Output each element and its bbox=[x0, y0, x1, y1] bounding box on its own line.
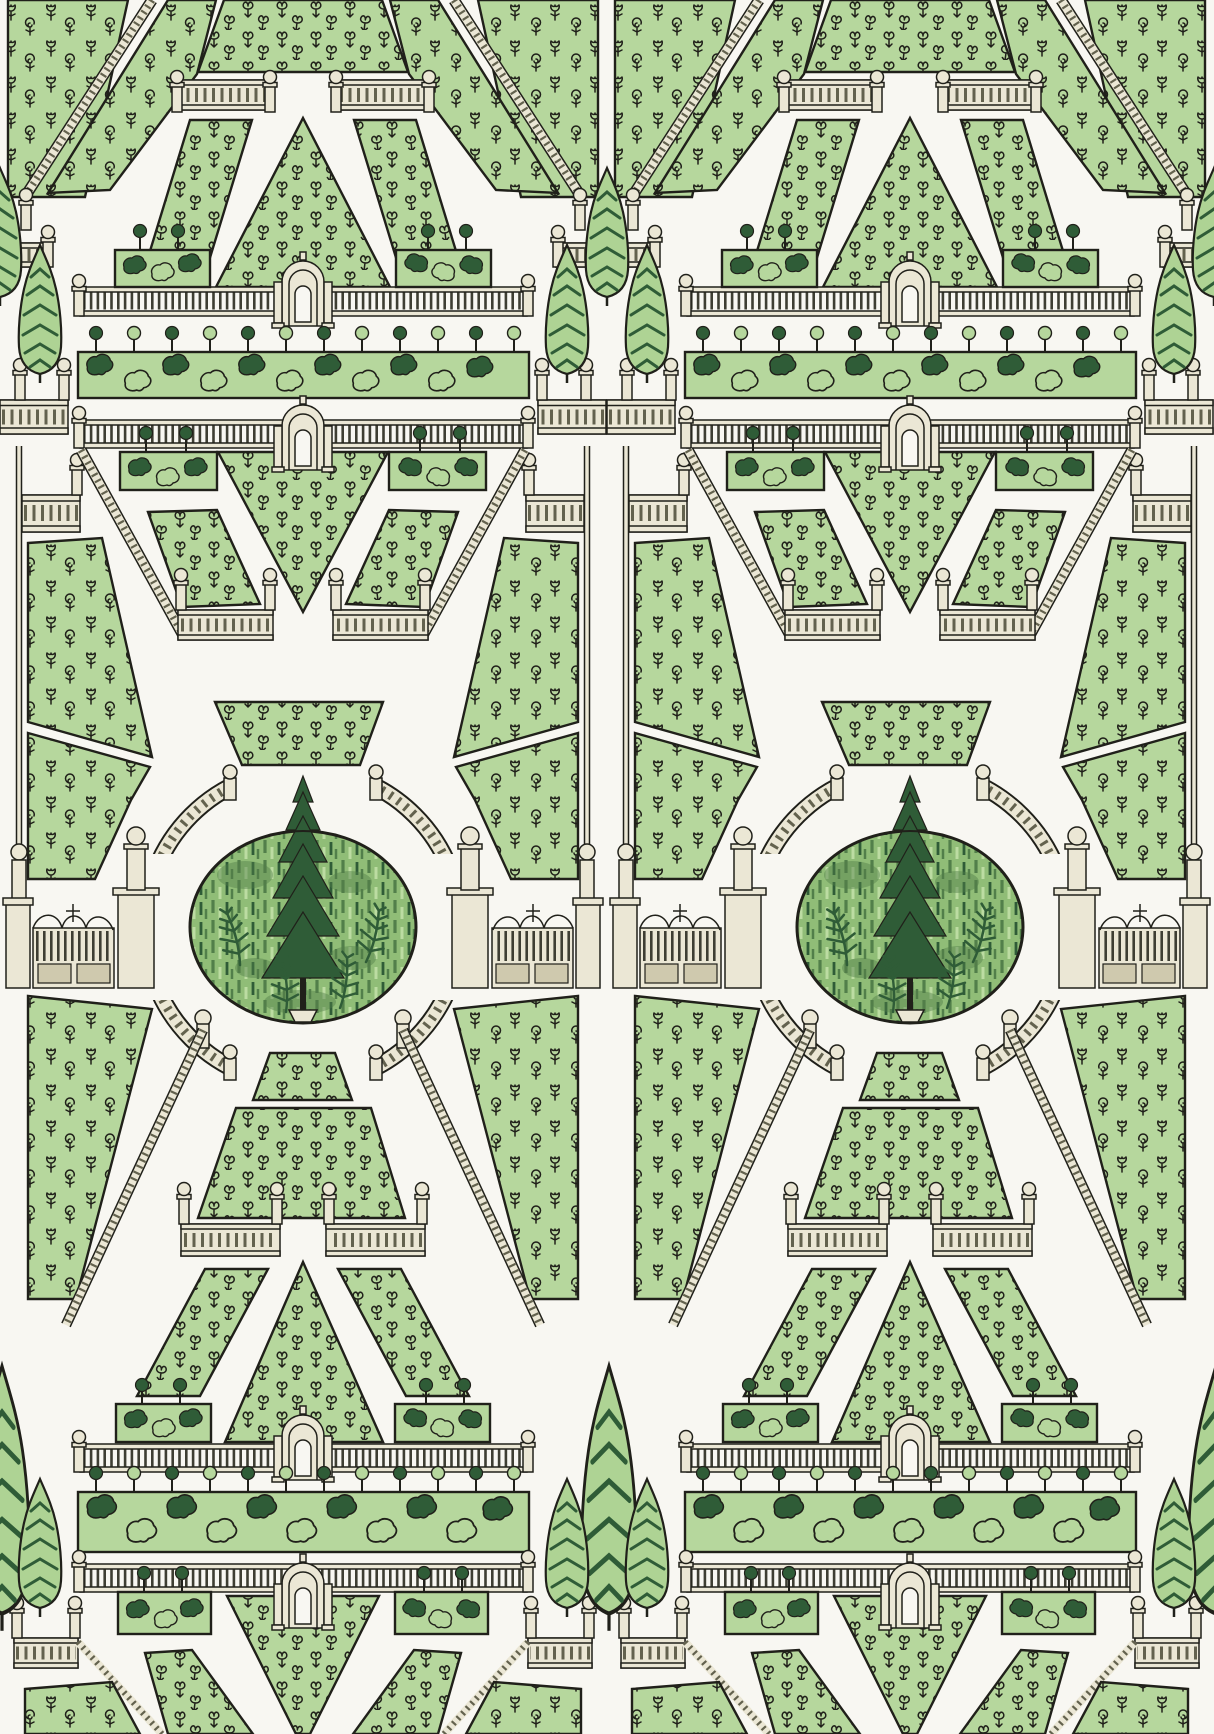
wallpaper-pattern bbox=[0, 0, 1214, 1734]
garden-wallpaper-canvas bbox=[0, 0, 1214, 1734]
